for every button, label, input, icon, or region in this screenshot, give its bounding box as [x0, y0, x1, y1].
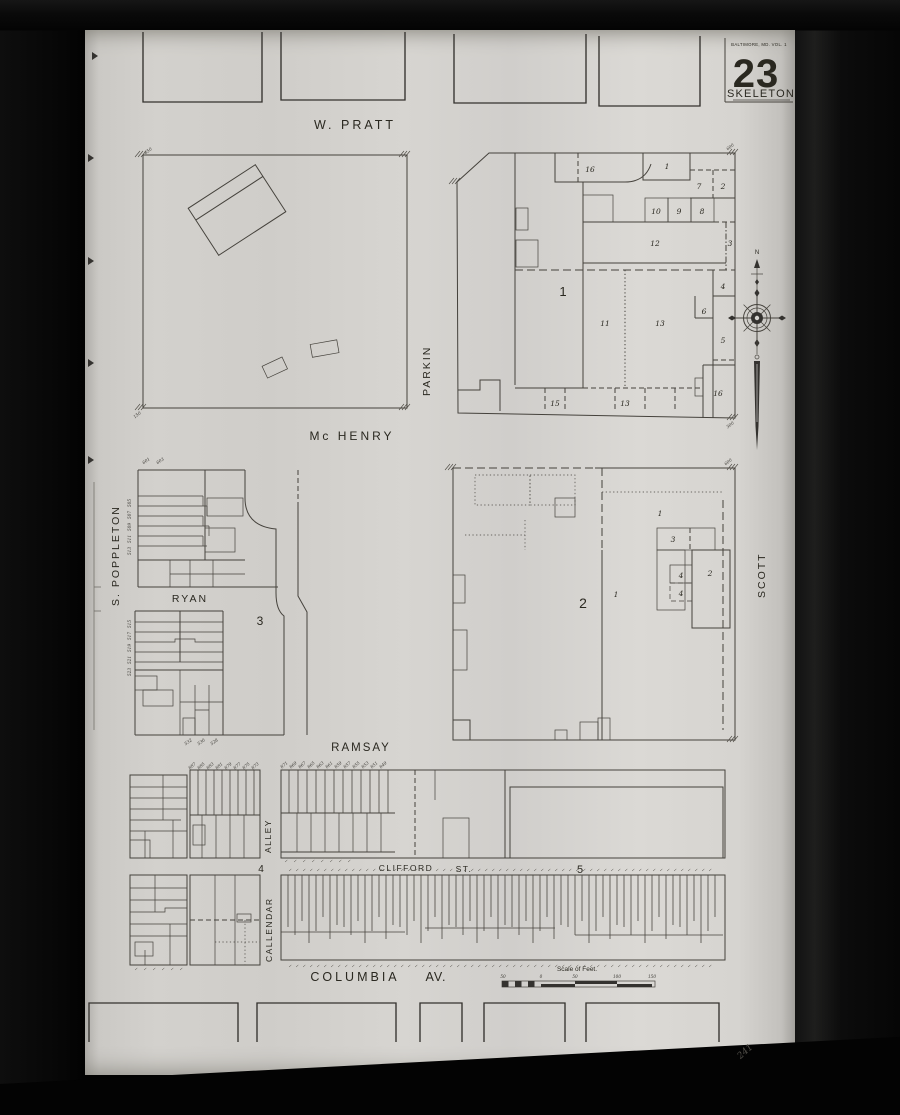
- building-number: 12: [650, 239, 660, 248]
- corner-hatch: [449, 178, 454, 184]
- tick-mark: [436, 869, 438, 871]
- tick-mark: [681, 965, 683, 967]
- dimension-number: 150: [133, 411, 143, 420]
- tick-mark: [492, 965, 494, 967]
- tick-mark: [653, 869, 655, 871]
- tick-mark: [513, 965, 515, 967]
- street-clifford: CLIFFORD: [379, 863, 434, 873]
- tick-mark: [646, 869, 648, 871]
- tick-mark: [317, 869, 319, 871]
- building-number: 1: [614, 590, 619, 599]
- corner-hatch: [402, 404, 407, 410]
- tick-mark: [485, 965, 487, 967]
- dimension-number: 517: [128, 632, 133, 640]
- tick-mark: [541, 965, 543, 967]
- tick-mark: [604, 869, 606, 871]
- tick-mark: [695, 869, 697, 871]
- tick-mark: [303, 860, 305, 862]
- dimension-number: 851: [370, 761, 379, 770]
- dimension-number: 513: [128, 547, 133, 555]
- dimension-number: 600: [724, 458, 734, 467]
- tick-mark: [639, 869, 641, 871]
- corner-hatch: [452, 178, 457, 184]
- dimension-number: 865: [307, 761, 317, 770]
- street-ryan: RYAN: [172, 593, 208, 605]
- map-sheet: BALTIMORE, MD. VOL. 1 23 SKELETON W. PRA…: [85, 30, 795, 1075]
- building-number: 15: [550, 399, 560, 408]
- tick-mark: [366, 869, 368, 871]
- sheet-title-block: BALTIMORE, MD. VOL. 1 23 SKELETON: [725, 38, 795, 102]
- se-building-numbers: 134421: [614, 509, 713, 599]
- tick-mark: [352, 869, 354, 871]
- tick-mark: [541, 869, 543, 871]
- building-number: 11: [600, 319, 610, 328]
- tick-mark: [312, 860, 314, 862]
- partial-blocks-south: [89, 1003, 719, 1042]
- tick-mark: [296, 965, 298, 967]
- nw-block: [143, 155, 407, 408]
- tick-mark: [457, 965, 459, 967]
- tick-mark: [618, 965, 620, 967]
- tick-mark: [709, 869, 711, 871]
- scale-tick: 100: [613, 974, 621, 979]
- dimension-number: 871: [280, 761, 289, 770]
- street-s-poppleton: S. POPPLETON: [110, 505, 122, 606]
- tick-mark: [330, 860, 332, 862]
- tick-mark: [534, 965, 536, 967]
- street-callendar: CALLENDAR: [264, 897, 274, 962]
- tick-mark: [625, 965, 627, 967]
- dimension-number: 511: [128, 535, 133, 543]
- corner-hatch: [399, 404, 404, 410]
- building-number: 13: [655, 319, 665, 328]
- dimension-number: 532: [184, 738, 194, 747]
- tick-mark: [331, 965, 333, 967]
- building-number: 1: [658, 509, 663, 518]
- street-columbia-av: AV.: [425, 970, 446, 984]
- dimension-number: 519: [128, 644, 133, 652]
- tick-mark: [534, 869, 536, 871]
- tick-mark: [359, 869, 361, 871]
- scale-title: Scale of Feet.: [557, 966, 597, 973]
- dimension-number: 523: [128, 668, 133, 676]
- dimension-number: 861: [325, 761, 334, 770]
- tick-mark: [331, 869, 333, 871]
- building-number: 2: [720, 182, 726, 191]
- ne-building-numbers: 1617210981231113465161513: [550, 162, 732, 408]
- block-number-1: 1: [559, 284, 566, 299]
- building-number: 5: [721, 336, 726, 345]
- tick-mark: [597, 869, 599, 871]
- tick-mark: [660, 869, 662, 871]
- corner-hatch: [448, 464, 453, 470]
- tick-mark: [450, 869, 452, 871]
- tick-mark: [660, 965, 662, 967]
- dimension-number: 601: [142, 457, 152, 466]
- tick-mark: [646, 965, 648, 967]
- tick-mark: [471, 965, 473, 967]
- dimension-number: 300: [726, 421, 736, 430]
- street-mc-henry: Mc HENRY: [309, 429, 394, 443]
- compass-rose: N: [728, 250, 786, 450]
- building-number: 6: [702, 307, 707, 316]
- ramsay-row: [130, 770, 725, 858]
- scale-tick: 150: [648, 974, 656, 979]
- corner-hatch: [730, 736, 735, 742]
- block-number-4: 4: [258, 864, 264, 875]
- tick-mark: [527, 965, 529, 967]
- tick-mark: [144, 968, 146, 970]
- tick-mark: [436, 965, 438, 967]
- tick-mark: [415, 965, 417, 967]
- partial-blocks-north: [143, 32, 700, 106]
- tick-mark: [548, 965, 550, 967]
- tick-mark: [709, 965, 711, 967]
- corner-hatch: [730, 464, 735, 470]
- building-number: 16: [585, 165, 595, 174]
- tick-mark: [513, 869, 515, 871]
- tick-mark: [478, 869, 480, 871]
- rotated-building: [188, 165, 286, 256]
- tick-mark: [639, 965, 641, 967]
- small-building: [262, 357, 287, 378]
- street-clifford-st: ST.: [456, 864, 473, 874]
- tick-mark: [625, 869, 627, 871]
- tick-mark: [555, 869, 557, 871]
- tick-mark: [303, 965, 305, 967]
- tick-mark: [352, 965, 354, 967]
- tick-mark: [348, 860, 350, 862]
- tick-mark: [674, 869, 676, 871]
- block-number-3: 3: [257, 614, 264, 628]
- street-columbia: COLUMBIA: [310, 970, 399, 984]
- tick-mark: [135, 968, 137, 970]
- tick-mark: [373, 869, 375, 871]
- dimension-number: 867: [298, 761, 308, 770]
- se-block: [453, 468, 735, 740]
- tick-mark: [667, 965, 669, 967]
- building-number: 4: [678, 589, 684, 598]
- clifford-row: [130, 875, 725, 965]
- dimension-number: 528: [210, 738, 220, 747]
- tick-mark: [611, 965, 613, 967]
- tick-mark: [464, 965, 466, 967]
- tick-mark: [321, 860, 323, 862]
- scale-tick: 50: [572, 974, 578, 979]
- corner-hatch: [727, 414, 732, 420]
- tick-mark: [632, 965, 634, 967]
- building-number: 8: [700, 207, 705, 216]
- film-edge-marks: [88, 52, 98, 464]
- building-number: 3: [671, 535, 676, 544]
- tick-mark: [366, 965, 368, 967]
- tick-mark: [429, 965, 431, 967]
- building-number: 13: [620, 399, 630, 408]
- tick-mark: [506, 869, 508, 871]
- corner-hatch: [730, 414, 735, 420]
- block-number-5: 5: [577, 864, 583, 876]
- corner-hatch: [445, 464, 450, 470]
- tick-mark: [294, 860, 296, 862]
- tick-mark: [422, 965, 424, 967]
- tick-mark: [317, 965, 319, 967]
- scale-bar: Scale of Feet.: [502, 966, 655, 987]
- sanborn-map: BALTIMORE, MD. VOL. 1 23 SKELETON W. PRA…: [85, 30, 795, 1075]
- tick-mark: [492, 869, 494, 871]
- building-number: 3: [728, 239, 733, 248]
- tick-mark: [667, 869, 669, 871]
- tick-mark: [688, 869, 690, 871]
- tick-mark: [310, 965, 312, 967]
- street-parkin: PARKIN: [421, 346, 433, 396]
- tick-mark: [310, 869, 312, 871]
- ne-block: [457, 153, 735, 418]
- tick-mark: [499, 965, 501, 967]
- tick-mark: [597, 965, 599, 967]
- tick-mark: [338, 869, 340, 871]
- tick-mark: [387, 965, 389, 967]
- street-labels: W. PRATT Mc HENRY RAMSAY CLIFFORD ST. CO…: [110, 118, 768, 984]
- tick-mark: [401, 965, 403, 967]
- tick-mark: [562, 869, 564, 871]
- tick-mark: [339, 860, 341, 862]
- tick-mark: [695, 965, 697, 967]
- tick-mark: [443, 869, 445, 871]
- dimension-number: 505: [128, 499, 133, 507]
- tick-mark: [702, 869, 704, 871]
- tick-mark: [611, 869, 613, 871]
- tick-mark: [324, 869, 326, 871]
- dimension-number: 849: [379, 761, 389, 770]
- tick-mark: [569, 869, 571, 871]
- compass-north-label: N: [755, 250, 759, 256]
- tick-mark: [702, 965, 704, 967]
- tick-mark: [604, 965, 606, 967]
- dimension-number: 855: [352, 761, 362, 770]
- tick-mark: [450, 965, 452, 967]
- building-number: 1: [665, 162, 670, 171]
- corner-hatch: [138, 404, 143, 410]
- tick-mark: [180, 968, 182, 970]
- corner-hatch: [135, 404, 140, 410]
- tick-mark: [289, 869, 291, 871]
- tick-mark: [478, 965, 480, 967]
- tick-mark: [338, 965, 340, 967]
- corner-hatch: [727, 736, 732, 742]
- block-number-2: 2: [579, 595, 587, 611]
- corner-hatch: [135, 151, 140, 157]
- tick-mark: [674, 965, 676, 967]
- tick-mark: [345, 869, 347, 871]
- building-number: 7: [697, 182, 702, 191]
- dimension-number: 603: [156, 457, 166, 466]
- scale-tick-labels: 50050100150: [500, 974, 656, 979]
- street-scott: SCOTT: [756, 552, 768, 598]
- tick-mark: [289, 965, 291, 967]
- corner-hatch: [399, 151, 404, 157]
- tick-mark: [590, 869, 592, 871]
- tick-mark: [296, 869, 298, 871]
- building-number: 9: [677, 207, 682, 216]
- dimension-number: 859: [334, 761, 344, 770]
- dimension-number: 863: [316, 761, 326, 770]
- street-alley: ALLEY: [263, 819, 273, 853]
- building-number: 4: [720, 282, 726, 291]
- scale-tick: 0: [540, 974, 543, 979]
- tick-mark: [688, 965, 690, 967]
- tick-mark: [520, 965, 522, 967]
- building-number: 4: [678, 571, 684, 580]
- tick-mark: [345, 965, 347, 967]
- building-number: 16: [713, 389, 723, 398]
- dimension-number: 869: [289, 761, 299, 770]
- tick-mark: [303, 869, 305, 871]
- film-scan-frame: BALTIMORE, MD. VOL. 1 23 SKELETON W. PRA…: [0, 0, 900, 1115]
- street-w-pratt: W. PRATT: [314, 118, 396, 132]
- tick-mark: [153, 968, 155, 970]
- tick-mark: [373, 965, 375, 967]
- tick-mark: [324, 965, 326, 967]
- small-building: [310, 340, 339, 357]
- dimension-number: 857: [343, 761, 353, 770]
- scale-tick: 50: [500, 974, 506, 979]
- dimension-number: 530: [197, 738, 207, 747]
- tick-mark: [653, 965, 655, 967]
- tick-mark: [171, 968, 173, 970]
- dimension-numbers: 6501506003006006016035055075095115135155…: [128, 143, 736, 771]
- tick-mark: [485, 869, 487, 871]
- tick-mark: [359, 965, 361, 967]
- building-number: 2: [707, 569, 713, 578]
- tick-mark: [583, 869, 585, 871]
- atlas-note: BALTIMORE, MD. VOL. 1: [731, 42, 787, 47]
- tick-mark: [632, 869, 634, 871]
- street-ramsay: RAMSAY: [331, 742, 391, 754]
- tick-mark: [408, 965, 410, 967]
- tick-mark: [380, 965, 382, 967]
- tick-mark: [548, 869, 550, 871]
- corner-hatch: [138, 151, 143, 157]
- dimension-number: 509: [128, 523, 133, 531]
- tick-mark: [162, 968, 164, 970]
- dimension-number: 515: [128, 620, 133, 628]
- tick-mark: [506, 965, 508, 967]
- dimension-number: 521: [128, 656, 133, 664]
- sheet-type-label: SKELETON: [727, 88, 795, 100]
- dimension-number: 507: [128, 511, 133, 519]
- building-number: 10: [651, 207, 661, 216]
- dimension-number: 853: [361, 761, 371, 770]
- corner-hatch: [402, 151, 407, 157]
- tick-mark: [443, 965, 445, 967]
- tick-mark: [499, 869, 501, 871]
- tick-mark: [285, 860, 287, 862]
- tick-mark: [618, 869, 620, 871]
- tick-mark: [681, 869, 683, 871]
- tick-mark: [527, 869, 529, 871]
- tick-mark: [520, 869, 522, 871]
- tick-mark: [394, 965, 396, 967]
